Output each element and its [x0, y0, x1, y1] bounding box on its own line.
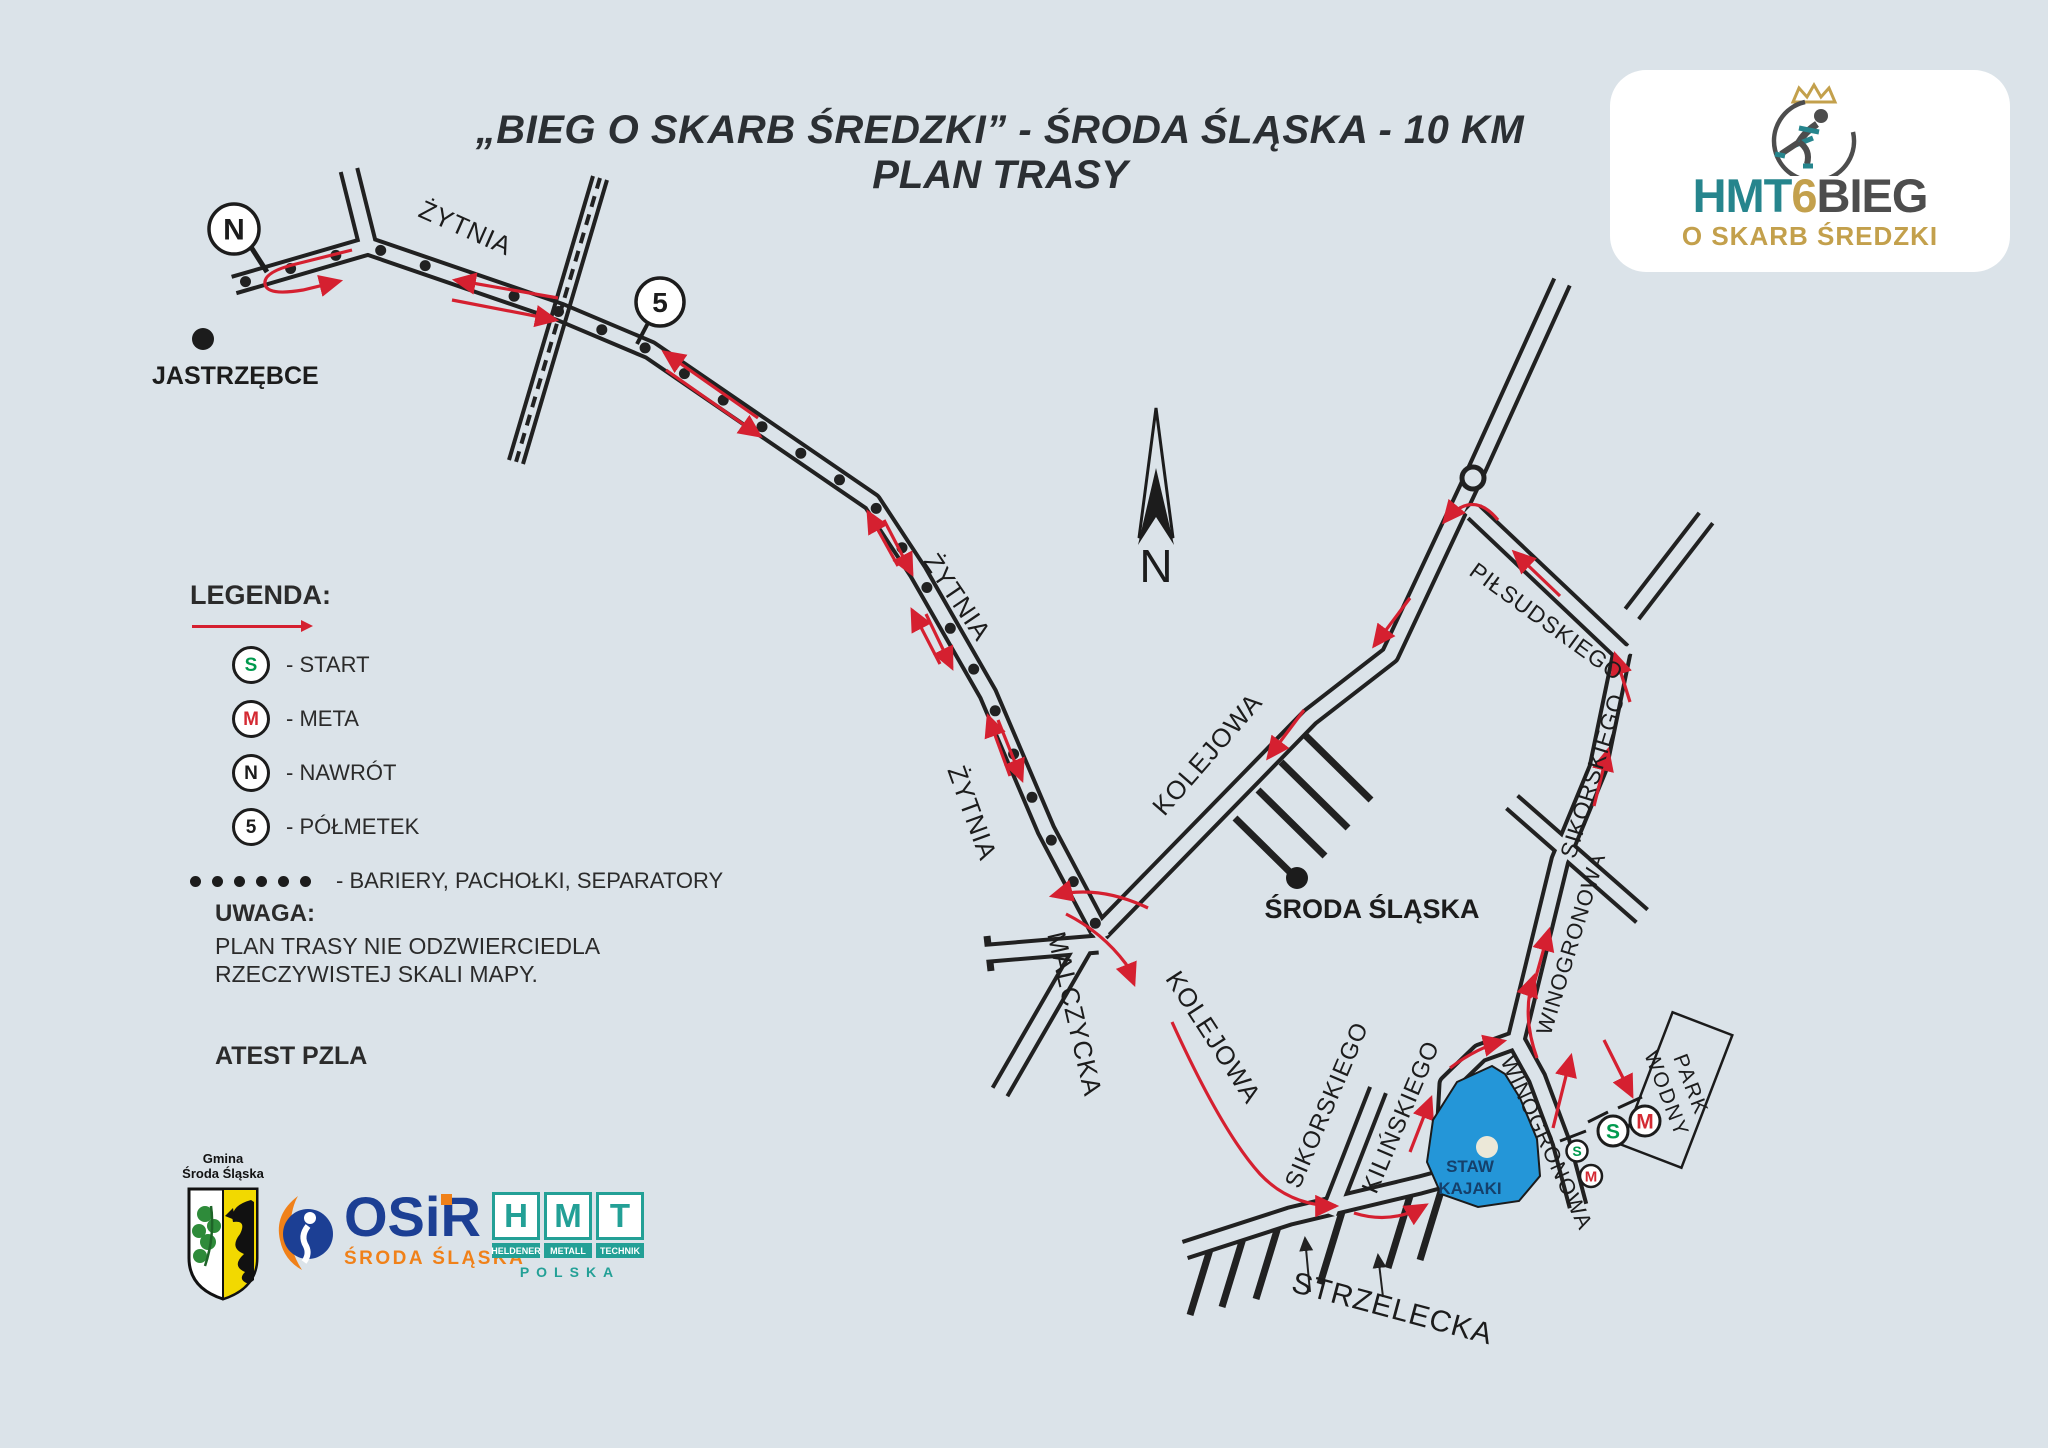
title-line2: PLAN TRASY	[350, 153, 1650, 198]
street-label: SIKORSKIEGO	[1555, 690, 1630, 861]
separator-dot	[871, 503, 882, 514]
gmina-crest-icon	[185, 1186, 261, 1302]
halfway-marker-letter: 5	[652, 287, 668, 318]
osir-logo: OSiR ŚRODA ŚLĄSKA	[272, 1192, 525, 1274]
start-icon: S	[232, 646, 270, 684]
meta-icon: M	[232, 700, 270, 738]
separator-dot	[553, 306, 564, 317]
town-label: JASTRZĘBCE	[152, 362, 319, 390]
town-dot	[192, 328, 214, 350]
compass-north: N	[1138, 408, 1174, 592]
separator-dot	[990, 705, 1001, 716]
start-marker-letter: S	[1606, 1120, 1620, 1143]
route-arrow	[664, 352, 758, 418]
legend-item-meta: M - META	[232, 698, 723, 740]
separator-dot	[1090, 918, 1101, 929]
title-line1: „BIEG O SKARB ŚREDZKI” - ŚRODA ŚLĄSKA - …	[350, 108, 1650, 153]
scale-note: UWAGA: PLAN TRASY NIE ODZWIERCIEDLA RZEC…	[215, 900, 600, 988]
legend-item-nawrot: N - NAWRÓT	[232, 752, 723, 794]
separator-dot	[640, 342, 651, 353]
separator-dot	[795, 448, 806, 459]
street-label: STRZELECKA	[1288, 1266, 1496, 1351]
separator-dot	[834, 474, 845, 485]
side-street	[1256, 1227, 1278, 1299]
town-label: ŚRODA ŚLĄSKA	[1264, 893, 1479, 924]
legend-heading: LEGENDA:	[190, 580, 723, 611]
route-arrow	[1604, 1040, 1632, 1096]
turnaround-icon: N	[232, 754, 270, 792]
meta-marker-small-letter: M	[1585, 1168, 1598, 1185]
attest-pzla: ATEST PZLA	[215, 1042, 367, 1071]
separator-dot	[968, 664, 979, 675]
separator-dot	[945, 623, 956, 634]
street-label: ŻYTNIA	[942, 762, 1004, 865]
legend-item-polmetek: 5 - PÓŁMETEK	[232, 806, 723, 848]
separator-dot	[240, 276, 251, 287]
logo-subtitle: O SKARB ŚREDZKI	[1682, 221, 1938, 252]
meta-marker-letter: M	[1636, 1110, 1654, 1133]
legend: LEGENDA: S - START M - META N - NAWRÓT 5…	[190, 580, 723, 914]
hmt-sponsor-logo: H M T HELDENER METALL TECHNIK POLSKA	[492, 1192, 648, 1280]
side-street	[1420, 1188, 1442, 1260]
separator-dot	[757, 421, 768, 432]
route-direction-arrow-icon	[192, 625, 304, 628]
town-dot	[1286, 867, 1308, 889]
separator-dots-icon	[190, 876, 320, 887]
runner-crown-icon	[1735, 80, 1885, 176]
legend-item-separators: - BARIERY, PACHOŁKI, SEPARATORY	[190, 860, 723, 902]
separator-dot	[1068, 876, 1079, 887]
separator-dot	[1027, 792, 1038, 803]
osir-icon	[272, 1192, 334, 1274]
logo-wordmark: HMT6BIEG	[1693, 172, 1928, 219]
pond-label: STAW	[1446, 1157, 1495, 1176]
event-logo: HMT6BIEG O SKARB ŚREDZKI	[1610, 70, 2010, 272]
separator-dot	[1046, 835, 1057, 846]
start-marker-small-letter: S	[1572, 1143, 1581, 1159]
street-label: ŻYTNIA	[415, 194, 517, 261]
gmina-logo: Gmina Środa Śląska	[168, 1152, 278, 1307]
street-label: KOLEJOWA	[1160, 965, 1268, 1108]
separator-dot	[596, 324, 607, 335]
street-label: KOLEJOWA	[1146, 687, 1268, 821]
halfway-icon: 5	[232, 808, 270, 846]
street-label: SIKORSKIEGO	[1280, 1018, 1374, 1192]
roundabout-icon	[1462, 467, 1484, 489]
nawrot-marker-letter: N	[223, 214, 245, 247]
pond-label: KAJAKI	[1438, 1179, 1501, 1198]
compass-n-label: N	[1139, 540, 1172, 592]
side-street	[1388, 1196, 1410, 1268]
legend-item-start: S - START	[232, 644, 723, 686]
route-plan-page: STAWKAJAKIPARKWODNYŻYTNIAŻYTNIAŻYTNIAKOL…	[0, 0, 2048, 1448]
separator-dot	[375, 245, 386, 256]
page-title: „BIEG O SKARB ŚREDZKI” - ŚRODA ŚLĄSKA - …	[350, 108, 1650, 198]
separator-dot	[420, 260, 431, 271]
